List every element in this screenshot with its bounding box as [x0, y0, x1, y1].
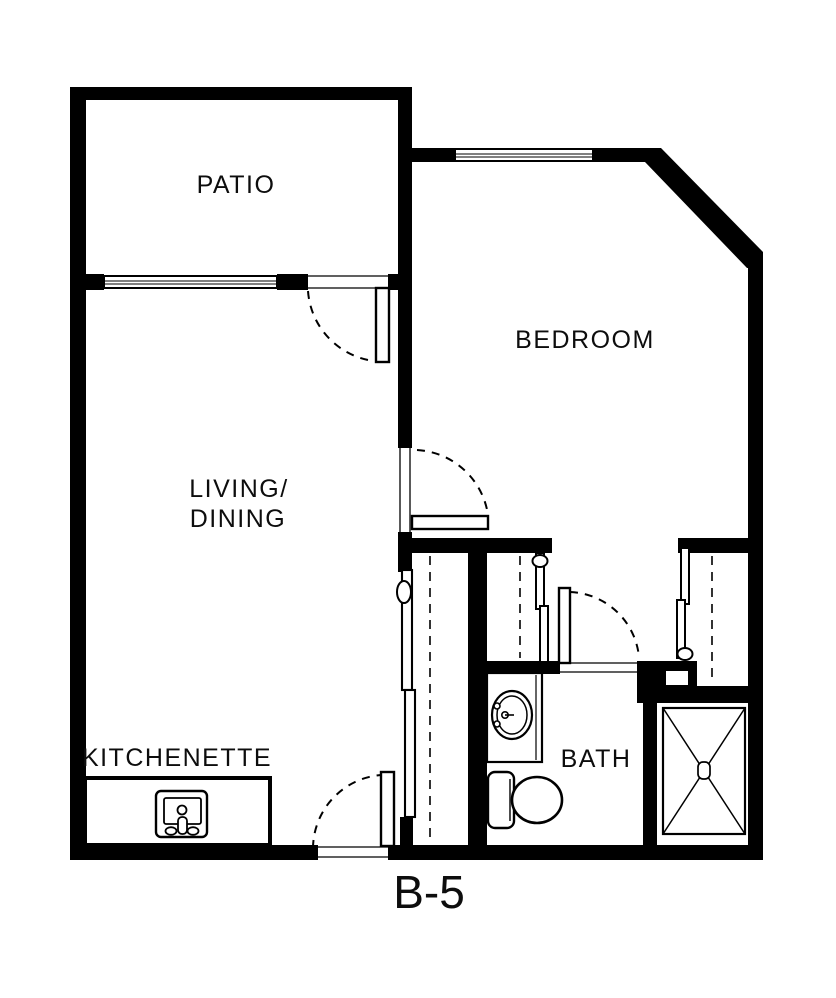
floor-plan-drawing: PATIO BEDROOM LIVING/ DINING KITCHENETTE… — [0, 0, 836, 998]
entry-door — [313, 772, 394, 860]
floor-plan-page: PATIO BEDROOM LIVING/ DINING KITCHENETTE… — [0, 0, 836, 998]
wall-living-left — [70, 274, 86, 860]
linen-closet-handle — [533, 555, 548, 567]
toilet-icon — [488, 772, 562, 828]
wall-bottom-left — [70, 845, 318, 860]
bath-vanity — [487, 673, 542, 762]
hall-closet-door-panel — [405, 690, 415, 817]
bedroom-door — [398, 448, 488, 532]
wall-bedroom-top-right — [593, 148, 652, 162]
wall-bedroom-diagonal — [645, 148, 763, 268]
patio-door-panel — [376, 288, 389, 362]
wall-notch — [666, 671, 688, 685]
bedroom-door-panel — [412, 516, 488, 529]
wall-bedroom-top-left — [410, 148, 455, 162]
patio-door-swing-arc — [308, 291, 374, 361]
shower-icon — [663, 708, 745, 834]
bath-door-panel — [559, 588, 570, 663]
entry-door-panel — [381, 772, 394, 846]
patio-label: PATIO — [197, 171, 276, 199]
shower-drain — [698, 762, 710, 779]
wall-bath-shower-divider — [643, 693, 657, 845]
linen-closet-door-panel — [540, 606, 548, 662]
bedroom-closet-handle — [678, 648, 693, 660]
bath-sink-icon — [492, 691, 532, 739]
wall-closet-front-stub — [400, 817, 413, 845]
wall-right — [748, 252, 763, 860]
bath-label: BATH — [561, 745, 632, 773]
wall-patio-left — [70, 87, 86, 290]
kitchen-sink-icon — [156, 791, 207, 837]
patio-door — [308, 274, 389, 362]
living-label-line1: LIVING/ — [189, 475, 288, 503]
kitchenette-label: KITCHENETTE — [82, 744, 272, 772]
wall-living-bedroom-upper — [398, 87, 412, 448]
bedroom-closet-door-panel — [681, 548, 689, 604]
bedroom-door-swing-arc — [417, 450, 488, 515]
wall-shower-top — [643, 686, 763, 703]
living-label-line2: DINING — [190, 505, 287, 533]
bath-door-swing-arc — [570, 592, 639, 657]
linen-closet — [520, 553, 548, 662]
entry-door-swing-arc — [313, 775, 381, 848]
windows — [104, 149, 593, 288]
patio-window — [104, 276, 277, 288]
wall-bedroom-bottom-right — [678, 538, 763, 553]
bedroom-label: BEDROOM — [515, 326, 655, 354]
wall-patio-top — [70, 87, 412, 100]
wall-bedroom-bottom-left — [398, 538, 552, 553]
hall-closet — [397, 556, 430, 840]
plan-title: B-5 — [393, 866, 465, 918]
kitchenette-counter — [85, 778, 270, 845]
wall-bottom-right — [388, 845, 763, 860]
hall-closet-handle — [397, 581, 411, 603]
wall-closet-bath-divider — [468, 553, 487, 845]
bedroom-window — [455, 149, 593, 161]
bath-door — [559, 588, 639, 674]
wall-patio-bottom-mid — [277, 274, 308, 290]
